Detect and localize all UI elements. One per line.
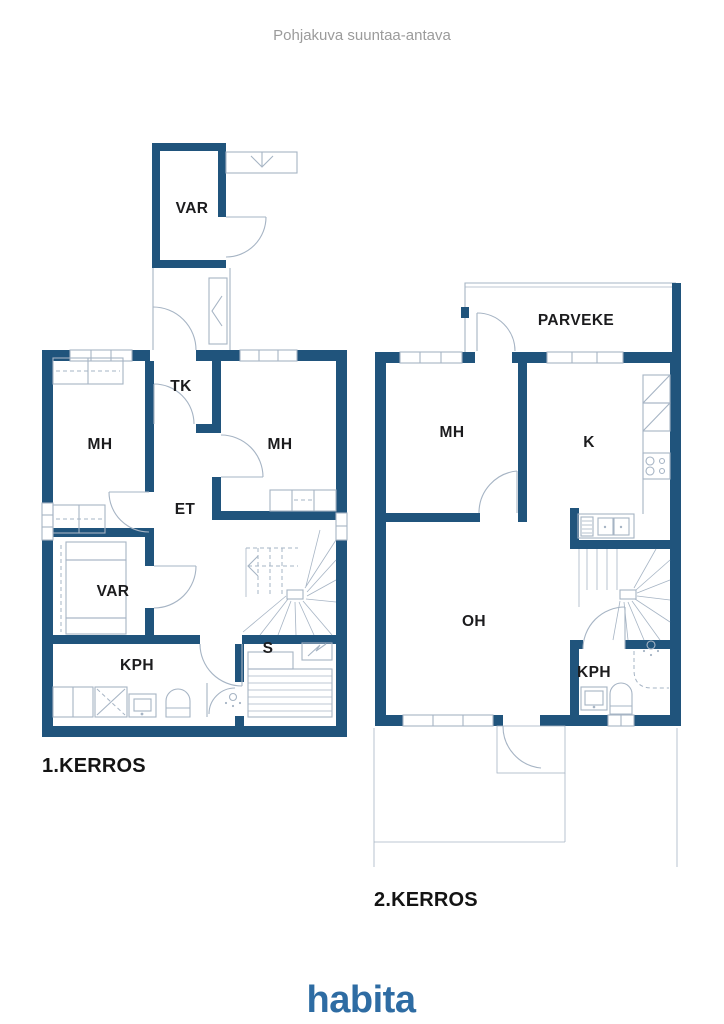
room-label-mh-left: MH	[88, 436, 113, 453]
floor2-title: 2.KERROS	[374, 889, 478, 911]
room-label-et: ET	[175, 501, 196, 518]
room-label-kph-2: KPH	[577, 664, 611, 681]
floorplan-canvas: VAR TK MH MH ET VAR KPH S 1.KERROS	[0, 0, 724, 1024]
page: VAR TK MH MH ET VAR KPH S 1.KERROS	[0, 0, 724, 1024]
floor2-walls	[375, 352, 681, 726]
room-label-kph-1: KPH	[120, 657, 154, 674]
room-label-var-storage: VAR	[176, 200, 209, 217]
floor1-detached-storage	[152, 143, 266, 268]
room-label-s: S	[263, 640, 274, 657]
floor2-doors	[479, 471, 625, 649]
floor1-furniture	[53, 358, 336, 717]
floor2-terrace	[374, 726, 677, 867]
floor1-entry-corridor	[153, 268, 230, 350]
room-label-k: K	[583, 434, 595, 451]
floor2: PARVEKE MH K OH KPH 2.KERROS	[374, 283, 681, 911]
room-label-oh: OH	[462, 613, 486, 630]
room-label-parveke: PARVEKE	[538, 312, 614, 329]
floor1-title: 1.KERROS	[42, 755, 146, 777]
room-label-mh-right: MH	[268, 436, 293, 453]
floor1-entrance-canopy	[226, 152, 297, 173]
floor1-stairs	[243, 530, 336, 635]
floor1-walls	[42, 350, 347, 737]
floor1: VAR TK MH MH ET VAR KPH S 1.KERROS	[42, 143, 347, 777]
habita-logo: habita	[307, 979, 417, 1021]
floor2-kitchen-fixtures	[578, 375, 670, 538]
room-label-var: VAR	[97, 583, 130, 600]
room-label-tk: TK	[170, 378, 192, 395]
disclaimer-text: Pohjakuva suuntaa-antava	[273, 27, 451, 44]
room-label-mh-2: MH	[440, 424, 465, 441]
